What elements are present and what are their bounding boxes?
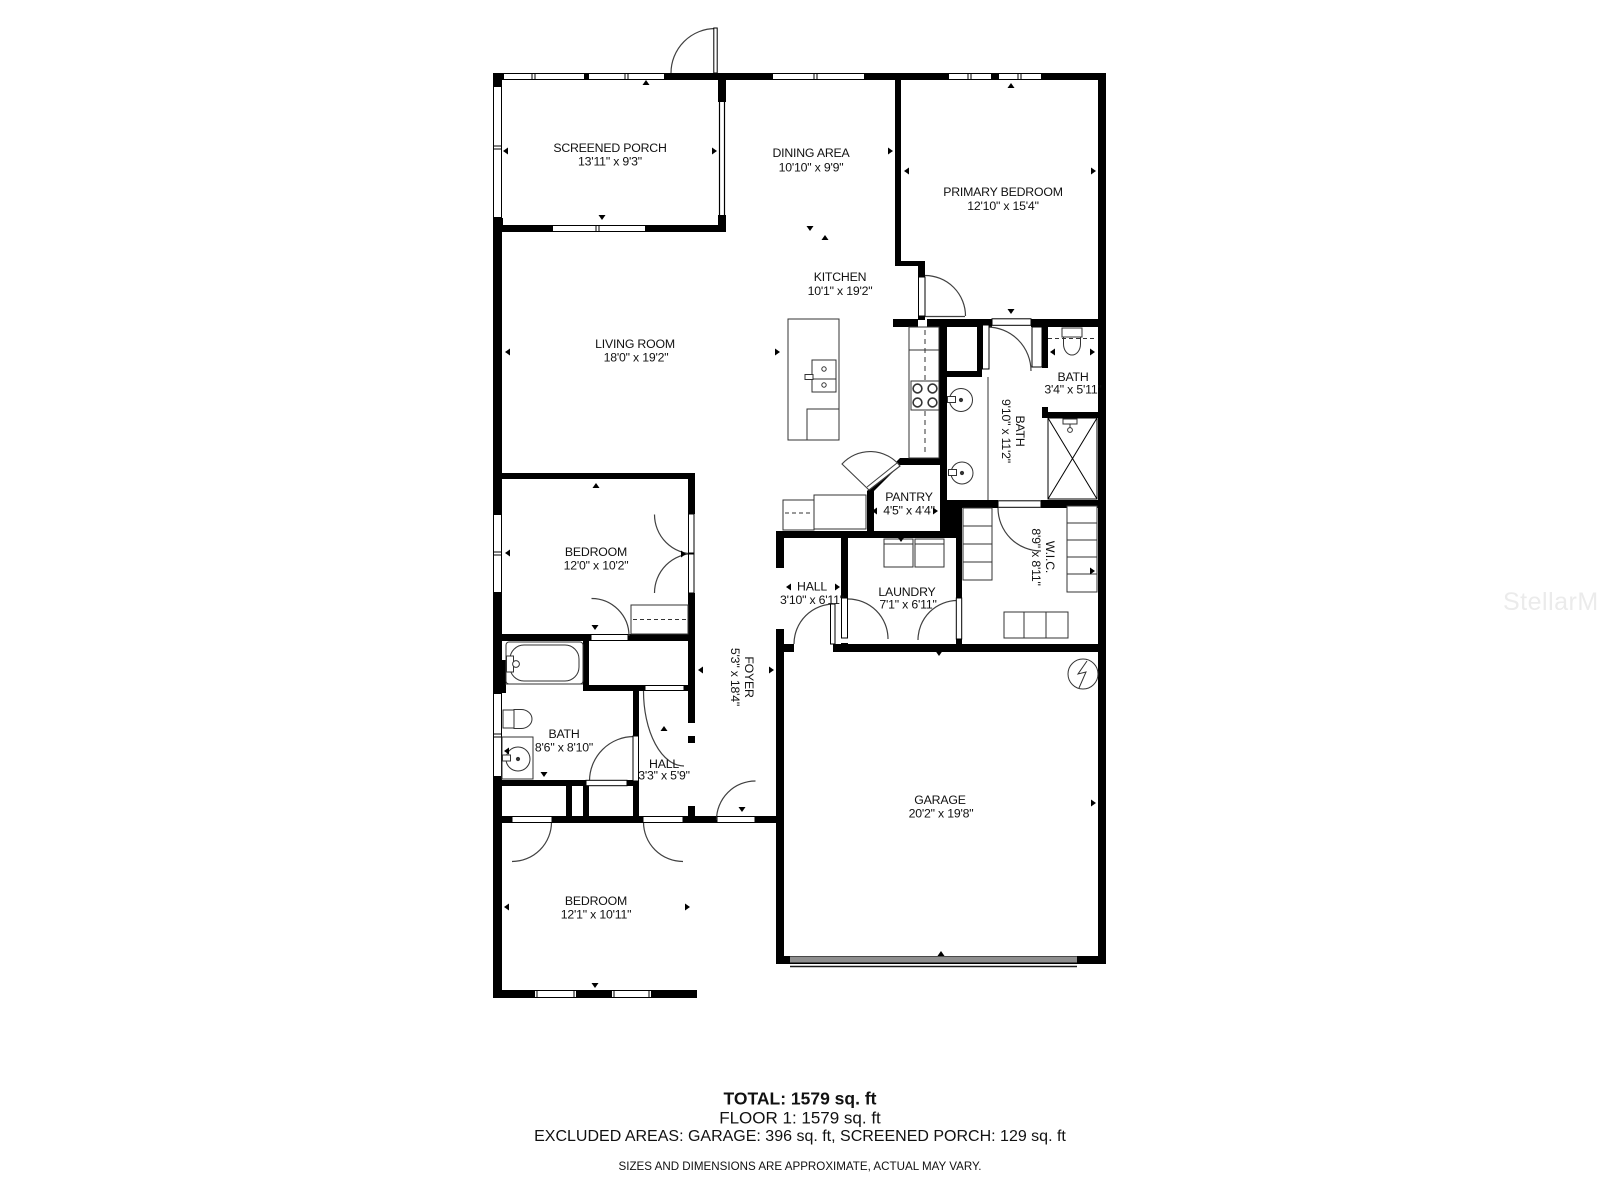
svg-text:20'2" x 19'8": 20'2" x 19'8" xyxy=(909,807,974,821)
svg-text:PANTRY: PANTRY xyxy=(885,490,933,504)
svg-text:FLOOR 1: 1579 sq. ft: FLOOR 1: 1579 sq. ft xyxy=(719,1109,881,1128)
svg-text:KITCHEN: KITCHEN xyxy=(814,270,867,284)
svg-text:5'3" x 18'4": 5'3" x 18'4" xyxy=(728,648,742,706)
svg-text:BEDROOM: BEDROOM xyxy=(565,545,627,559)
svg-text:HALL: HALL xyxy=(797,580,827,594)
svg-text:W.I.C.: W.I.C. xyxy=(1043,541,1057,573)
svg-text:SCREENED PORCH: SCREENED PORCH xyxy=(553,141,666,155)
svg-text:LIVING ROOM: LIVING ROOM xyxy=(595,337,675,351)
svg-text:GARAGE: GARAGE xyxy=(914,793,965,807)
svg-text:10'1" x 19'2": 10'1" x 19'2" xyxy=(808,284,873,298)
svg-text:3'3" x 5'9": 3'3" x 5'9" xyxy=(638,769,690,783)
svg-text:4'5" x 4'4": 4'5" x 4'4" xyxy=(883,504,935,518)
svg-text:BATH: BATH xyxy=(548,727,579,741)
svg-text:EXCLUDED AREAS: GARAGE: 396 sq: EXCLUDED AREAS: GARAGE: 396 sq. ft, SCRE… xyxy=(534,1128,1066,1145)
svg-text:PRIMARY BEDROOM: PRIMARY BEDROOM xyxy=(943,185,1063,199)
svg-text:13'11" x 9'3": 13'11" x 9'3" xyxy=(578,155,642,169)
svg-text:8'6" x 8'10": 8'6" x 8'10" xyxy=(535,741,593,755)
svg-text:3'10" x 6'11": 3'10" x 6'11" xyxy=(780,593,844,607)
svg-text:8'9" x 8'11": 8'9" x 8'11" xyxy=(1029,528,1043,585)
svg-text:18'0" x 19'2": 18'0" x 19'2" xyxy=(604,351,669,365)
svg-text:9'10" x 11'2": 9'10" x 11'2" xyxy=(999,399,1013,463)
svg-text:TOTAL: 1579 sq. ft: TOTAL: 1579 sq. ft xyxy=(724,1089,877,1109)
svg-text:SIZES AND DIMENSIONS ARE APPRO: SIZES AND DIMENSIONS ARE APPROXIMATE, AC… xyxy=(619,1160,982,1173)
svg-text:12'1" x 10'11": 12'1" x 10'11" xyxy=(561,908,632,922)
svg-text:StellarMLS: StellarMLS xyxy=(1503,588,1600,616)
svg-text:DINING AREA: DINING AREA xyxy=(772,146,850,160)
svg-text:12'0" x 10'2": 12'0" x 10'2" xyxy=(564,559,629,573)
svg-text:10'10" x 9'9": 10'10" x 9'9" xyxy=(779,161,844,175)
svg-text:12'10" x 15'4": 12'10" x 15'4" xyxy=(967,199,1038,213)
svg-text:3'4" x 5'11": 3'4" x 5'11" xyxy=(1044,383,1101,397)
svg-text:BATH: BATH xyxy=(1013,415,1027,446)
svg-text:BEDROOM: BEDROOM xyxy=(565,894,627,908)
svg-text:7'1" x 6'11": 7'1" x 6'11" xyxy=(879,598,936,612)
svg-text:FOYER: FOYER xyxy=(742,656,756,698)
